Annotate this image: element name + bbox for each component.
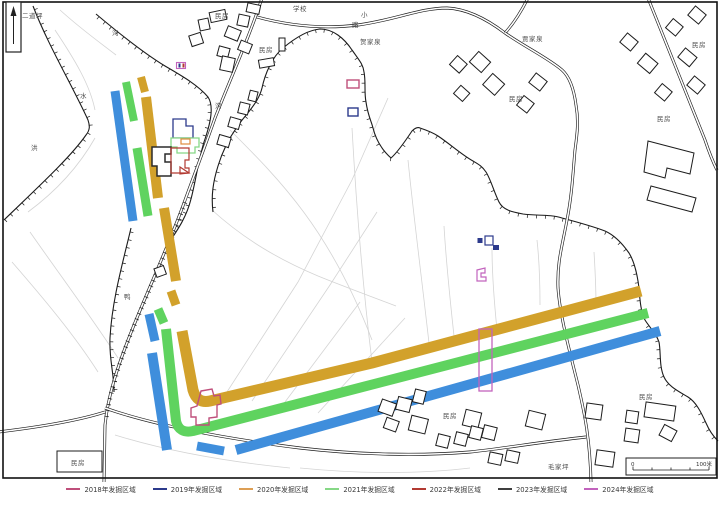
- site-map-page: 0 100米 二道坪沟水洪民房学校小路民房贺家泉贾家泉民房民房民房沟鸭民房民房毛…: [0, 0, 720, 506]
- scale-max: 100米: [696, 460, 712, 468]
- legend-label: 2023年发掘区域: [516, 484, 567, 494]
- band-2020-mid-b: [171, 291, 176, 305]
- marker-2024-arrow: [477, 268, 486, 281]
- legend-item: 2020年发掘区域: [239, 484, 308, 494]
- legend-item: 2023年发掘区域: [498, 484, 567, 494]
- marker-2019-sq-a: [478, 238, 483, 243]
- legend-item: 2024年发掘区域: [584, 484, 653, 494]
- legend: 2018年发掘区域2019年发掘区域2020年发掘区域2021年发掘区域2022…: [0, 484, 720, 494]
- legend-label: 2019年发掘区域: [171, 484, 222, 494]
- north-arrow-box: [6, 2, 21, 52]
- legend-swatch: [325, 488, 339, 490]
- legend-swatch: [66, 488, 80, 490]
- band-2019-south-vertical: [152, 353, 167, 450]
- marker-flag: [177, 63, 186, 69]
- marker-2019-sq-b: [485, 236, 493, 245]
- band-2020-nw-a: [141, 77, 145, 92]
- band-2019-mid: [149, 314, 155, 341]
- legend-swatch: [412, 488, 426, 490]
- outline-2018-rect: [347, 80, 359, 88]
- legend-label: 2020年发掘区域: [257, 484, 308, 494]
- legend-item: 2022年发掘区域: [412, 484, 481, 494]
- scale-zero: 0: [631, 462, 635, 468]
- scale-bar: 0 100米: [626, 458, 716, 475]
- band-2020-main-L: [182, 291, 641, 402]
- legend-swatch: [239, 488, 253, 490]
- band-2020-mid-a: [164, 208, 176, 281]
- legend-label: 2022年发掘区域: [430, 484, 481, 494]
- band-2019-corner-stub: [197, 446, 224, 451]
- outline-2021-cluster: [171, 138, 199, 153]
- excavation-site-map: 0 100米: [0, 0, 720, 506]
- outline-2019-cluster: [173, 119, 193, 138]
- labeled-house: [57, 451, 102, 472]
- road-center-vertical: [505, 33, 591, 482]
- legend-label: 2018年发掘区域: [84, 484, 135, 494]
- band-2021-nw-b: [137, 148, 148, 216]
- legend-item: 2021年发掘区域: [325, 484, 394, 494]
- legend-swatch: [153, 488, 167, 490]
- legend-item: 2018年发掘区域: [66, 484, 135, 494]
- legend-label: 2024年发掘区域: [602, 484, 653, 494]
- band-2021-mid: [158, 309, 164, 323]
- legend-label: 2021年发掘区域: [343, 484, 394, 494]
- buildings: [57, 3, 706, 472]
- band-2021-nw-a: [126, 82, 134, 121]
- marker-2019-sq-c: [493, 245, 499, 250]
- cliff-lines: [4, 6, 718, 441]
- legend-swatch: [498, 488, 512, 490]
- band-2019-main-horizontal: [236, 331, 660, 450]
- legend-swatch: [584, 488, 598, 490]
- road-school: [257, 0, 528, 33]
- legend-item: 2019年发掘区域: [153, 484, 222, 494]
- outline-2019-rect: [348, 108, 358, 116]
- hatch-ticks: [110, 232, 133, 390]
